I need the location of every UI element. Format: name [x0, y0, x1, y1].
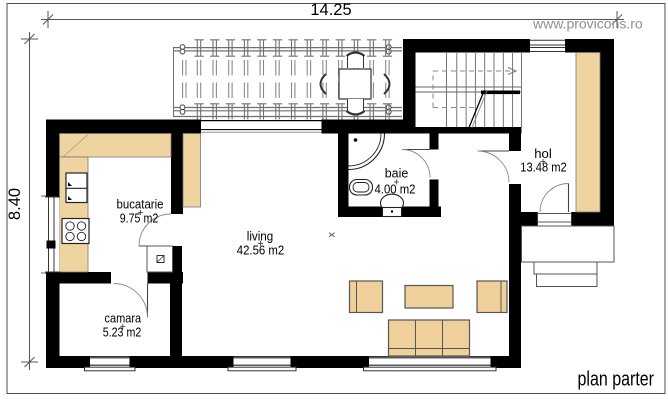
svg-text:bucatarie: bucatarie: [117, 197, 164, 212]
svg-text:8.40: 8.40: [6, 188, 24, 220]
svg-text:www.provicons.ro: www.provicons.ro: [532, 16, 643, 32]
svg-text:baie: baie: [385, 166, 409, 181]
svg-text:plan parter: plan parter: [578, 369, 655, 391]
svg-text:4.00 m2: 4.00 m2: [375, 182, 416, 197]
svg-text:14.25: 14.25: [310, 1, 351, 19]
svg-text:camara: camara: [105, 311, 142, 326]
